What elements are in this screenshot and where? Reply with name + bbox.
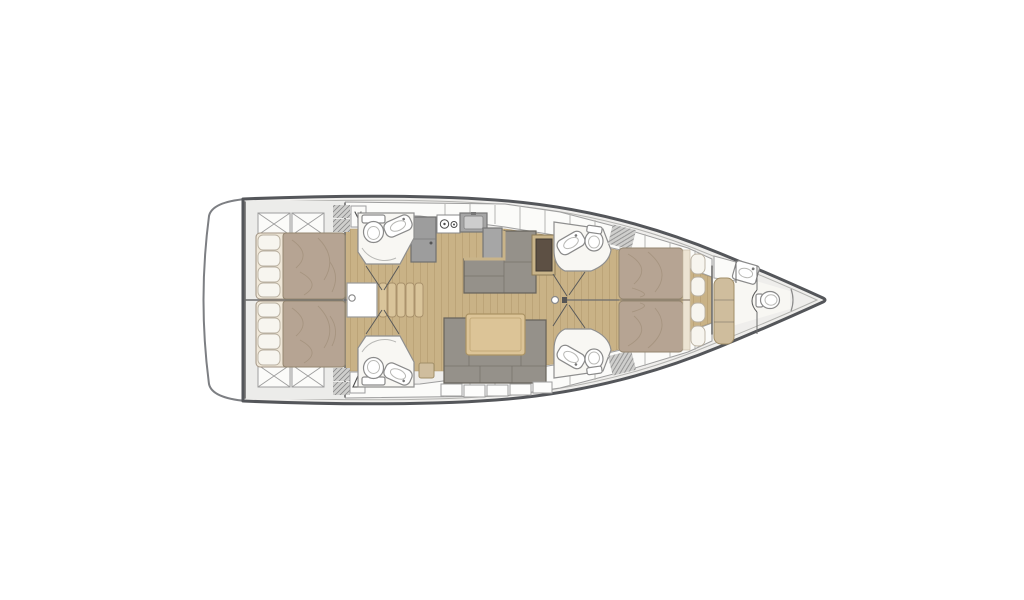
swim-platform-transom xyxy=(204,199,247,401)
aft-cabin-starboard-bed xyxy=(256,301,345,367)
yacht-floorplan-canvas xyxy=(0,0,1024,600)
toilet xyxy=(362,358,385,386)
aft-cabin-port-bed xyxy=(256,233,345,299)
toilet xyxy=(362,215,385,243)
toilet xyxy=(585,225,603,251)
toilet xyxy=(585,349,603,375)
deck-winch xyxy=(349,295,355,301)
yacht-floorplan xyxy=(0,0,1024,600)
bow-toilet xyxy=(756,292,780,309)
fridge xyxy=(411,217,436,262)
bow-bench-berth xyxy=(714,278,734,344)
salon-table xyxy=(466,314,525,355)
salon-step-bench xyxy=(419,363,434,378)
mast-post xyxy=(552,297,559,304)
chart-table xyxy=(532,235,555,275)
stove xyxy=(437,215,460,233)
